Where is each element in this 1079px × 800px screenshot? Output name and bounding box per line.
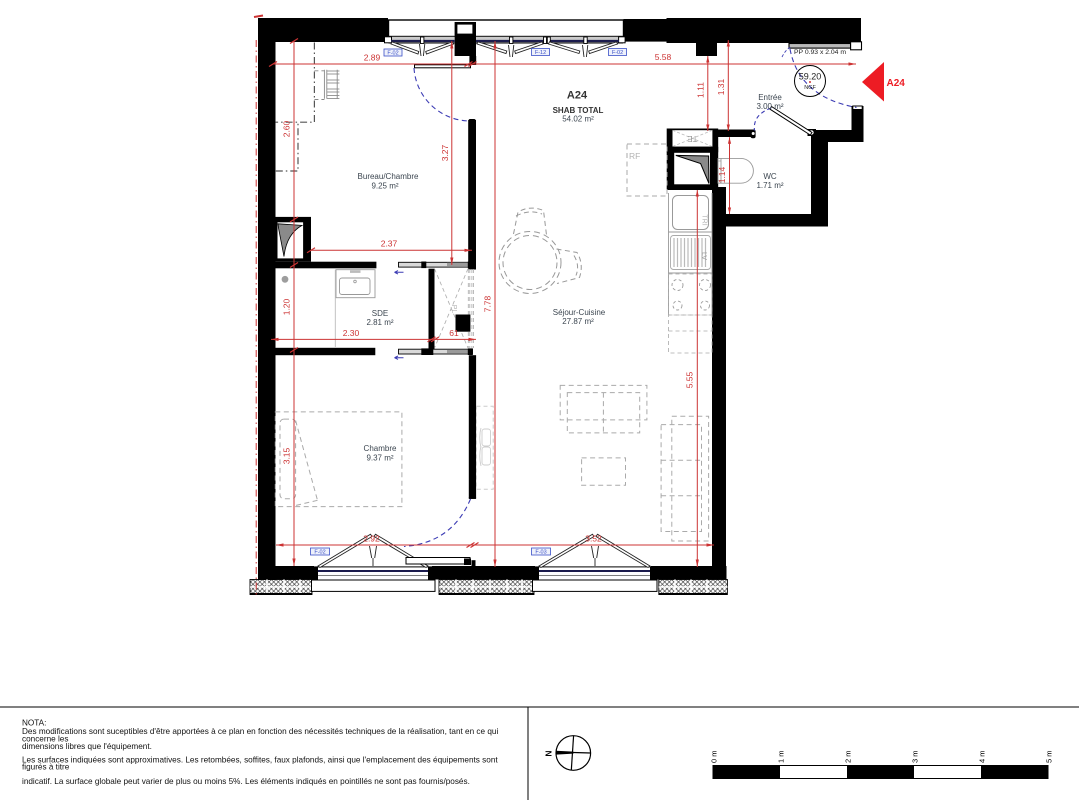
svg-text:RF: RF: [629, 151, 640, 161]
svg-text:PL: PL: [450, 305, 457, 314]
svg-text:A24: A24: [887, 78, 906, 89]
svg-text:F-02: F-02: [612, 50, 623, 56]
svg-text:5.58: 5.58: [655, 52, 672, 62]
svg-text:3.52: 3.52: [585, 534, 602, 544]
svg-text:3.27: 3.27: [440, 144, 450, 161]
svg-text:dimensions libres que l'équipe: dimensions libres que l'équipement.: [22, 742, 152, 751]
svg-text:Des modifications sont sucepti: Des modifications sont suceptibles d'êtr…: [22, 727, 498, 736]
svg-text:27.87 m²: 27.87 m²: [562, 317, 594, 326]
svg-text:1.20: 1.20: [282, 298, 292, 315]
svg-text:F-12: F-12: [535, 50, 546, 56]
svg-text:SDE: SDE: [372, 309, 388, 318]
svg-text:N: N: [544, 750, 554, 756]
svg-text:figurés à titre: figurés à titre: [22, 763, 70, 772]
svg-text:indicatif. La surface globale: indicatif. La surface globale peut varie…: [22, 777, 470, 786]
svg-text:7.78: 7.78: [483, 295, 493, 312]
svg-text:Chambre: Chambre: [364, 444, 397, 453]
svg-text:9.37 m²: 9.37 m²: [366, 454, 393, 463]
svg-text:WC: WC: [763, 172, 777, 181]
svg-text:1 m: 1 m: [777, 750, 786, 763]
svg-text:1.14: 1.14: [717, 166, 727, 183]
svg-text:2.92: 2.92: [363, 534, 380, 544]
svg-text:4 m: 4 m: [978, 750, 987, 763]
svg-text:54.02 m²: 54.02 m²: [562, 115, 594, 124]
svg-text:5.55: 5.55: [685, 371, 695, 388]
svg-text:Séjour-Cuisine: Séjour-Cuisine: [553, 308, 606, 317]
svg-text:A24: A24: [567, 90, 588, 102]
svg-text:1.71 m²: 1.71 m²: [756, 181, 783, 190]
svg-text:NGF: NGF: [804, 85, 816, 91]
svg-text:2 m: 2 m: [844, 750, 853, 763]
svg-text:3 m: 3 m: [911, 750, 920, 763]
svg-text:61: 61: [449, 328, 459, 338]
svg-text:9.25 m²: 9.25 m²: [371, 182, 398, 191]
svg-text:PP 0.93 x 2.04 m: PP 0.93 x 2.04 m: [794, 49, 846, 56]
svg-text:3.00 m²: 3.00 m²: [756, 102, 783, 111]
svg-text:5 m: 5 m: [1045, 750, 1054, 763]
svg-text:2.81 m²: 2.81 m²: [366, 318, 393, 327]
svg-text:TE: TE: [687, 134, 697, 143]
svg-text:2.37: 2.37: [381, 239, 398, 249]
svg-text:3.15: 3.15: [282, 447, 292, 464]
svg-text:1.31: 1.31: [716, 78, 726, 95]
svg-text:1.11: 1.11: [696, 82, 706, 98]
svg-text:Les surfaces indiquées sont ap: Les surfaces indiquées sont approximativ…: [22, 756, 498, 765]
svg-text:LV: LV: [700, 252, 707, 260]
svg-text:2.89: 2.89: [364, 53, 381, 63]
svg-text:2.30: 2.30: [343, 328, 360, 338]
svg-text:F-03: F-03: [535, 550, 546, 556]
svg-text:59.20: 59.20: [799, 72, 822, 82]
svg-text:Entrée: Entrée: [758, 93, 782, 102]
svg-text:TRI: TRI: [701, 214, 708, 225]
svg-text:2.60: 2.60: [282, 120, 292, 137]
svg-text:F-02: F-02: [387, 51, 398, 57]
svg-text:0 m: 0 m: [710, 750, 719, 763]
svg-text:F-02: F-02: [314, 550, 325, 556]
svg-text:Bureau/Chambre: Bureau/Chambre: [358, 172, 419, 181]
